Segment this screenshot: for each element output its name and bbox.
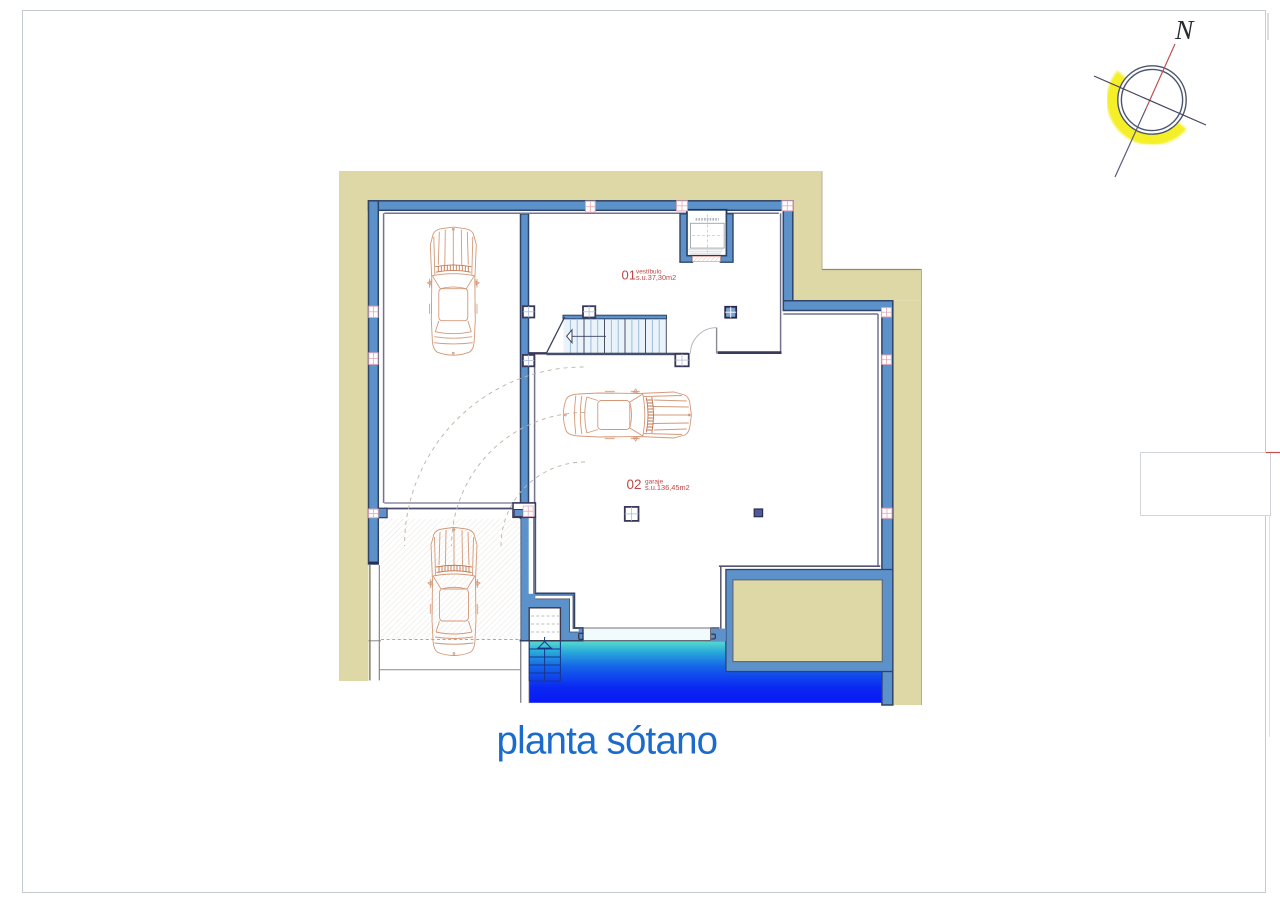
svg-text:01: 01 [622,267,636,282]
svg-text:02: 02 [627,477,642,492]
svg-text:planta sótano: planta sótano [497,720,718,763]
svg-text:s.u.136,45m2: s.u.136,45m2 [645,483,690,492]
svg-text:s.u.37,30m2: s.u.37,30m2 [636,273,676,282]
svg-text:N: N [1174,14,1195,45]
